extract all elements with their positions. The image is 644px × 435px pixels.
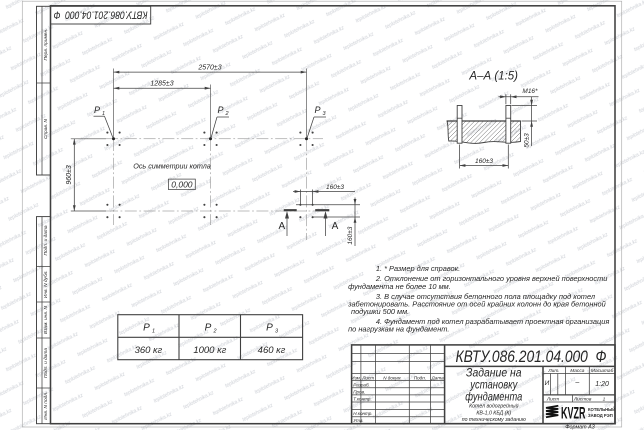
svg-text:50±3: 50±3 [524,133,531,148]
svg-text:1000 кг: 1000 кг [193,345,226,356]
svg-text:Котел водогрейный: Котел водогрейный [469,402,518,409]
svg-text:Пров.: Пров. [353,390,365,395]
svg-text:М16*: М16* [522,88,538,95]
svg-text:КВ-1,0 КБД (К): КВ-1,0 КБД (К) [476,410,511,416]
svg-text:Листов: Листов [573,396,592,402]
svg-text:N докум.: N докум. [383,375,402,380]
svg-text:И: И [545,380,550,387]
svg-text:Утв.: Утв. [353,418,363,423]
svg-text:Лит.: Лит. [547,368,559,374]
svg-text:Т.контр.: Т.контр. [353,397,372,402]
svg-text:Инв. N дубл.: Инв. N дубл. [43,270,49,298]
svg-text:Подп.: Подп. [414,375,426,380]
svg-text:1: 1 [603,396,606,402]
svg-text:2: 2 [224,111,228,117]
svg-text:Лист: Лист [546,396,559,402]
svg-text:по техническому заданию: по техническому заданию [462,417,526,423]
svg-text:Р: Р [205,323,212,334]
svg-text:0,000: 0,000 [171,179,193,189]
svg-text:Ось симметрии котла: Ось симметрии котла [133,161,211,170]
svg-text:Р: Р [314,105,320,115]
svg-text:1. * Размер для справок.: 1. * Размер для справок. [376,264,460,273]
svg-text:Взам. инв. N: Взам. инв. N [43,306,49,334]
svg-text:Масса: Масса [570,368,585,374]
svg-text:А: А [278,221,285,232]
svg-text:460 кг: 460 кг [258,345,286,356]
svg-text:1:20: 1:20 [595,381,609,388]
svg-text:160±3: 160±3 [326,184,344,191]
svg-text:Перв. примен.: Перв. примен. [43,29,49,61]
svg-text:Р: Р [217,105,223,115]
svg-text:КОТЕЛЬНЫЙ: КОТЕЛЬНЫЙ [588,407,615,412]
svg-text:Справ. N: Справ. N [43,118,49,139]
svg-text:KVZR: KVZR [561,404,586,422]
svg-text:360 кг: 360 кг [135,345,163,356]
svg-text:подушки 500 мм.: подушки 500 мм. [351,307,409,316]
svg-text:Масштаб: Масштаб [591,368,614,374]
svg-text:Н.контр.: Н.контр. [353,411,372,416]
svg-text:Дата: Дата [431,375,445,380]
svg-text:2570±3: 2570±3 [197,64,221,71]
svg-text:1: 1 [152,329,155,335]
svg-text:960±3: 960±3 [66,165,73,185]
svg-text:Подп. и дата: Подп. и дата [43,348,49,378]
svg-text:Разраб.: Разраб. [353,382,370,387]
svg-text:А–А (1:5): А–А (1:5) [468,70,518,82]
svg-text:КВТУ.086.201.04.000 Ф: КВТУ.086.201.04.000 Ф [53,8,147,20]
svg-text:160±3: 160±3 [475,158,493,165]
svg-text:2: 2 [212,329,216,335]
svg-text:ЗАВОД РЭП: ЗАВОД РЭП [588,413,613,418]
svg-text:Изм.: Изм. [351,375,361,380]
svg-text:по нагрузкам на фундамент.: по нагрузкам на фундамент. [348,324,449,333]
svg-text:Р: Р [266,323,273,334]
svg-text:–: – [574,379,579,386]
svg-text:фундамента не более 10 мм.: фундамента не более 10 мм. [348,282,451,291]
svg-text:160±3: 160±3 [347,226,354,244]
svg-text:1285±3: 1285±3 [150,80,173,87]
svg-text:Инв. N подл.: Инв. N подл. [43,392,49,420]
svg-text:А: А [332,221,339,232]
svg-text:Формат А3: Формат А3 [565,425,595,431]
svg-text:Лист: Лист [361,375,374,380]
svg-text:Подп. и дата: Подп. и дата [43,225,49,255]
svg-text:фундамента: фундамента [465,389,522,403]
svg-text:Р: Р [143,323,150,334]
svg-text:Р: Р [94,105,100,115]
svg-text:КВТУ.086.201.04.000 Ф: КВТУ.086.201.04.000 Ф [456,348,607,366]
